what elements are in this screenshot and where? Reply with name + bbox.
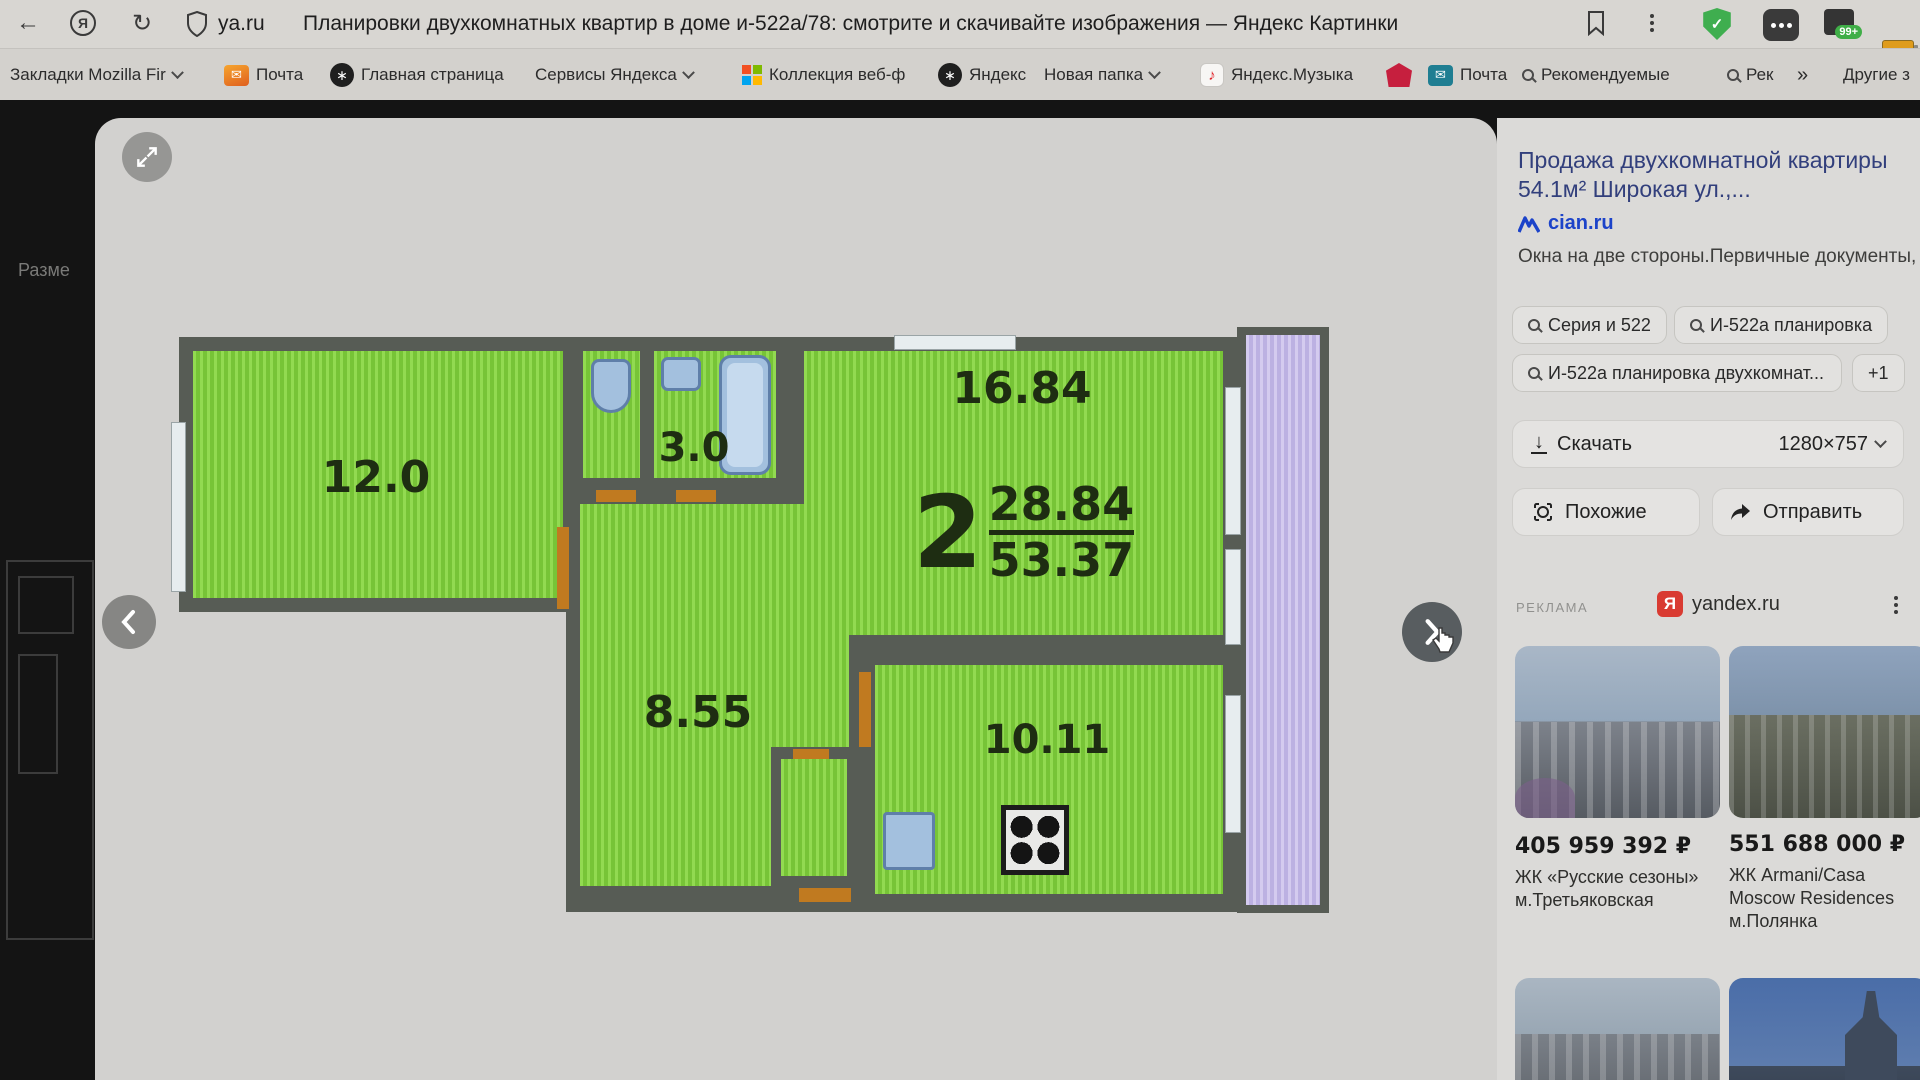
bookmark-folder-mozilla[interactable]: Закладки Mozilla Fir xyxy=(10,49,182,101)
bookmark-flag-icon[interactable] xyxy=(1586,10,1606,41)
ad-source-row[interactable]: Я yandex.ru xyxy=(1657,591,1780,617)
chevron-down-icon xyxy=(1148,66,1161,79)
bookmark-recommended[interactable]: Рекомендуемые xyxy=(1522,49,1694,101)
similar-icon xyxy=(1531,500,1555,524)
related-query-chip[interactable]: Серия и 522 xyxy=(1512,306,1667,344)
other-bookmarks[interactable]: Другие з xyxy=(1843,49,1920,101)
related-query-chip[interactable]: И-522а планировка двухкомнат... xyxy=(1512,354,1842,392)
bookmark-folder-new[interactable]: Новая папка xyxy=(1044,49,1159,101)
search-icon xyxy=(1690,319,1702,331)
search-icon xyxy=(1528,319,1540,331)
url-host[interactable]: ya.ru xyxy=(218,12,265,36)
related-query-chip[interactable]: И-522а планировка xyxy=(1674,306,1888,344)
download-icon: ↓ xyxy=(1531,434,1547,455)
listing-snippet: Окна на две стороны.Первичные документы,… xyxy=(1518,246,1920,268)
yandex-logo-icon[interactable]: Я xyxy=(70,10,96,36)
download-button[interactable]: ↓ Скачать 1280×757 xyxy=(1512,420,1904,468)
sink-fixture xyxy=(661,357,701,391)
area-bathroom: 3.0 xyxy=(634,425,754,471)
menu-kebab-icon[interactable] xyxy=(1650,14,1654,32)
ad-image[interactable] xyxy=(1729,646,1920,818)
house-icon xyxy=(1386,63,1412,87)
bookmark-folder-services[interactable]: Сервисы Яндекса xyxy=(535,49,693,101)
image-viewer-card: 12.0 3.0 16.84 2 28.84 53.37 8.55 10.11 xyxy=(95,118,1497,1080)
window-balcony-upper xyxy=(1225,387,1241,535)
yandex-start-icon: ∗ xyxy=(330,63,354,87)
more-chips-chip[interactable]: +1 xyxy=(1852,354,1905,392)
door-entrance xyxy=(799,888,851,902)
door-kitchen xyxy=(859,672,871,747)
extensions-icon[interactable] xyxy=(1763,9,1799,41)
ad-menu-kebab-icon[interactable] xyxy=(1894,596,1898,614)
area-room-small: 12.0 xyxy=(276,452,476,503)
flat-summary: 2 28.84 53.37 xyxy=(913,479,1134,585)
mail-icon: ✉ xyxy=(1428,65,1453,86)
chevron-down-icon xyxy=(1874,435,1887,448)
protect-shield-icon[interactable]: ✓ xyxy=(1702,8,1732,40)
refresh-icon[interactable]: ↻ xyxy=(132,9,152,38)
share-button[interactable]: Отправить xyxy=(1712,488,1904,536)
door-wc xyxy=(596,490,636,502)
chevron-down-icon xyxy=(171,66,184,79)
info-sidebar: Продажа двухкомнатной квартиры 54.1м² Ши… xyxy=(1497,118,1920,1080)
room-closet xyxy=(781,759,847,876)
next-image-button[interactable] xyxy=(1402,602,1462,662)
downloads-icon[interactable]: 99+ xyxy=(1824,9,1854,35)
door-room-small xyxy=(557,527,569,609)
chevron-left-icon xyxy=(118,609,140,635)
yandex-red-icon: Я xyxy=(1657,591,1683,617)
browser-tab-bar: ← Я ↻ ya.ru Планировки двухкомнатных ква… xyxy=(0,0,1920,48)
ad-image[interactable] xyxy=(1515,646,1720,818)
search-icon xyxy=(1522,69,1534,81)
tab-title: Планировки двухкомнатных квартир в доме … xyxy=(303,12,1573,36)
source-row[interactable]: cian.ru xyxy=(1518,212,1614,235)
bookmarks-bar: Закладки Mozilla Fir ✉ Почта ∗ Главная с… xyxy=(0,48,1920,100)
prev-image-button[interactable] xyxy=(102,595,156,649)
bookmark-yandex[interactable]: ∗ Яндекс xyxy=(938,49,1026,101)
source-domain: cian.ru xyxy=(1548,212,1614,235)
floorplan-image[interactable]: 12.0 3.0 16.84 2 28.84 53.37 8.55 10.11 xyxy=(171,327,1329,913)
balcony xyxy=(1246,335,1320,905)
ad-description[interactable]: ЖК Armani/Casa Moscow Residences м.Полян… xyxy=(1729,864,1894,933)
ad-label: РЕКЛАМА xyxy=(1516,600,1588,615)
search-icon xyxy=(1727,69,1739,81)
bookmarks-overflow[interactable]: » xyxy=(1797,49,1808,101)
total-area: 53.37 xyxy=(989,535,1135,586)
yandex-circle-icon: ∗ xyxy=(938,63,962,87)
search-icon xyxy=(1528,367,1540,379)
share-icon xyxy=(1729,500,1753,524)
bookmark-home-page[interactable]: ∗ Главная страница xyxy=(330,49,526,101)
toilet-fixture xyxy=(591,359,631,413)
window-kitchen xyxy=(1225,695,1241,833)
door-bathroom xyxy=(676,490,716,502)
area-room-big: 16.84 xyxy=(922,363,1122,414)
kitchen-sink-fixture xyxy=(883,812,935,870)
bookmark-web-collection[interactable]: Коллекция веб-ф xyxy=(742,49,905,101)
ad-image[interactable] xyxy=(1515,978,1720,1080)
bookmark-yandex-music[interactable]: ♪ Яндекс.Музыка xyxy=(1200,49,1353,101)
screen: ← Я ↻ ya.ru Планировки двухкомнатных ква… xyxy=(0,0,1920,1080)
cian-logo-icon xyxy=(1518,215,1540,233)
stove-fixture xyxy=(1001,805,1069,875)
area-kitchen: 10.11 xyxy=(947,717,1147,763)
mail-icon: ✉ xyxy=(224,65,249,86)
bookmark-house[interactable] xyxy=(1386,49,1412,101)
hand-cursor xyxy=(1430,626,1456,656)
music-icon: ♪ xyxy=(1200,63,1224,87)
ad-price[interactable]: 405 959 392 ₽ xyxy=(1515,834,1691,859)
area-hallway: 8.55 xyxy=(598,687,798,738)
ad-description[interactable]: ЖК «Русские сезоны» м.Третьяковская xyxy=(1515,866,1698,912)
door-closet xyxy=(793,749,829,759)
back-icon[interactable]: ← xyxy=(16,9,40,37)
ad-image[interactable] xyxy=(1729,978,1920,1080)
downloads-badge: 99+ xyxy=(1835,25,1862,39)
bookmark-mail-2[interactable]: ✉ Почта xyxy=(1428,49,1507,101)
resolution-selector[interactable]: 1280×757 xyxy=(1778,433,1885,456)
window-balcony-lower xyxy=(1225,549,1241,645)
site-shield-icon[interactable] xyxy=(186,11,208,42)
expand-icon xyxy=(134,144,160,170)
listing-title-link[interactable]: Продажа двухкомнатной квартиры 54.1м² Ши… xyxy=(1518,146,1914,204)
microsoft-icon xyxy=(742,65,762,85)
similar-button[interactable]: Похожие xyxy=(1512,488,1700,536)
chevron-down-icon xyxy=(682,66,695,79)
living-area: 28.84 xyxy=(989,479,1135,535)
left-panel-thumbnail-ghost xyxy=(6,560,94,940)
window-room-small xyxy=(171,422,186,592)
ad-price[interactable]: 551 688 000 ₽ xyxy=(1729,832,1905,857)
rooms-count: 2 xyxy=(913,490,983,575)
bookmark-rec[interactable]: Рек xyxy=(1727,49,1773,101)
fullscreen-expand-button[interactable] xyxy=(122,132,172,182)
ad-source-domain: yandex.ru xyxy=(1692,593,1780,616)
bookmark-mail[interactable]: ✉ Почта xyxy=(224,49,303,101)
window-top xyxy=(894,335,1016,350)
left-panel-clipped-text: Разме xyxy=(18,260,96,281)
